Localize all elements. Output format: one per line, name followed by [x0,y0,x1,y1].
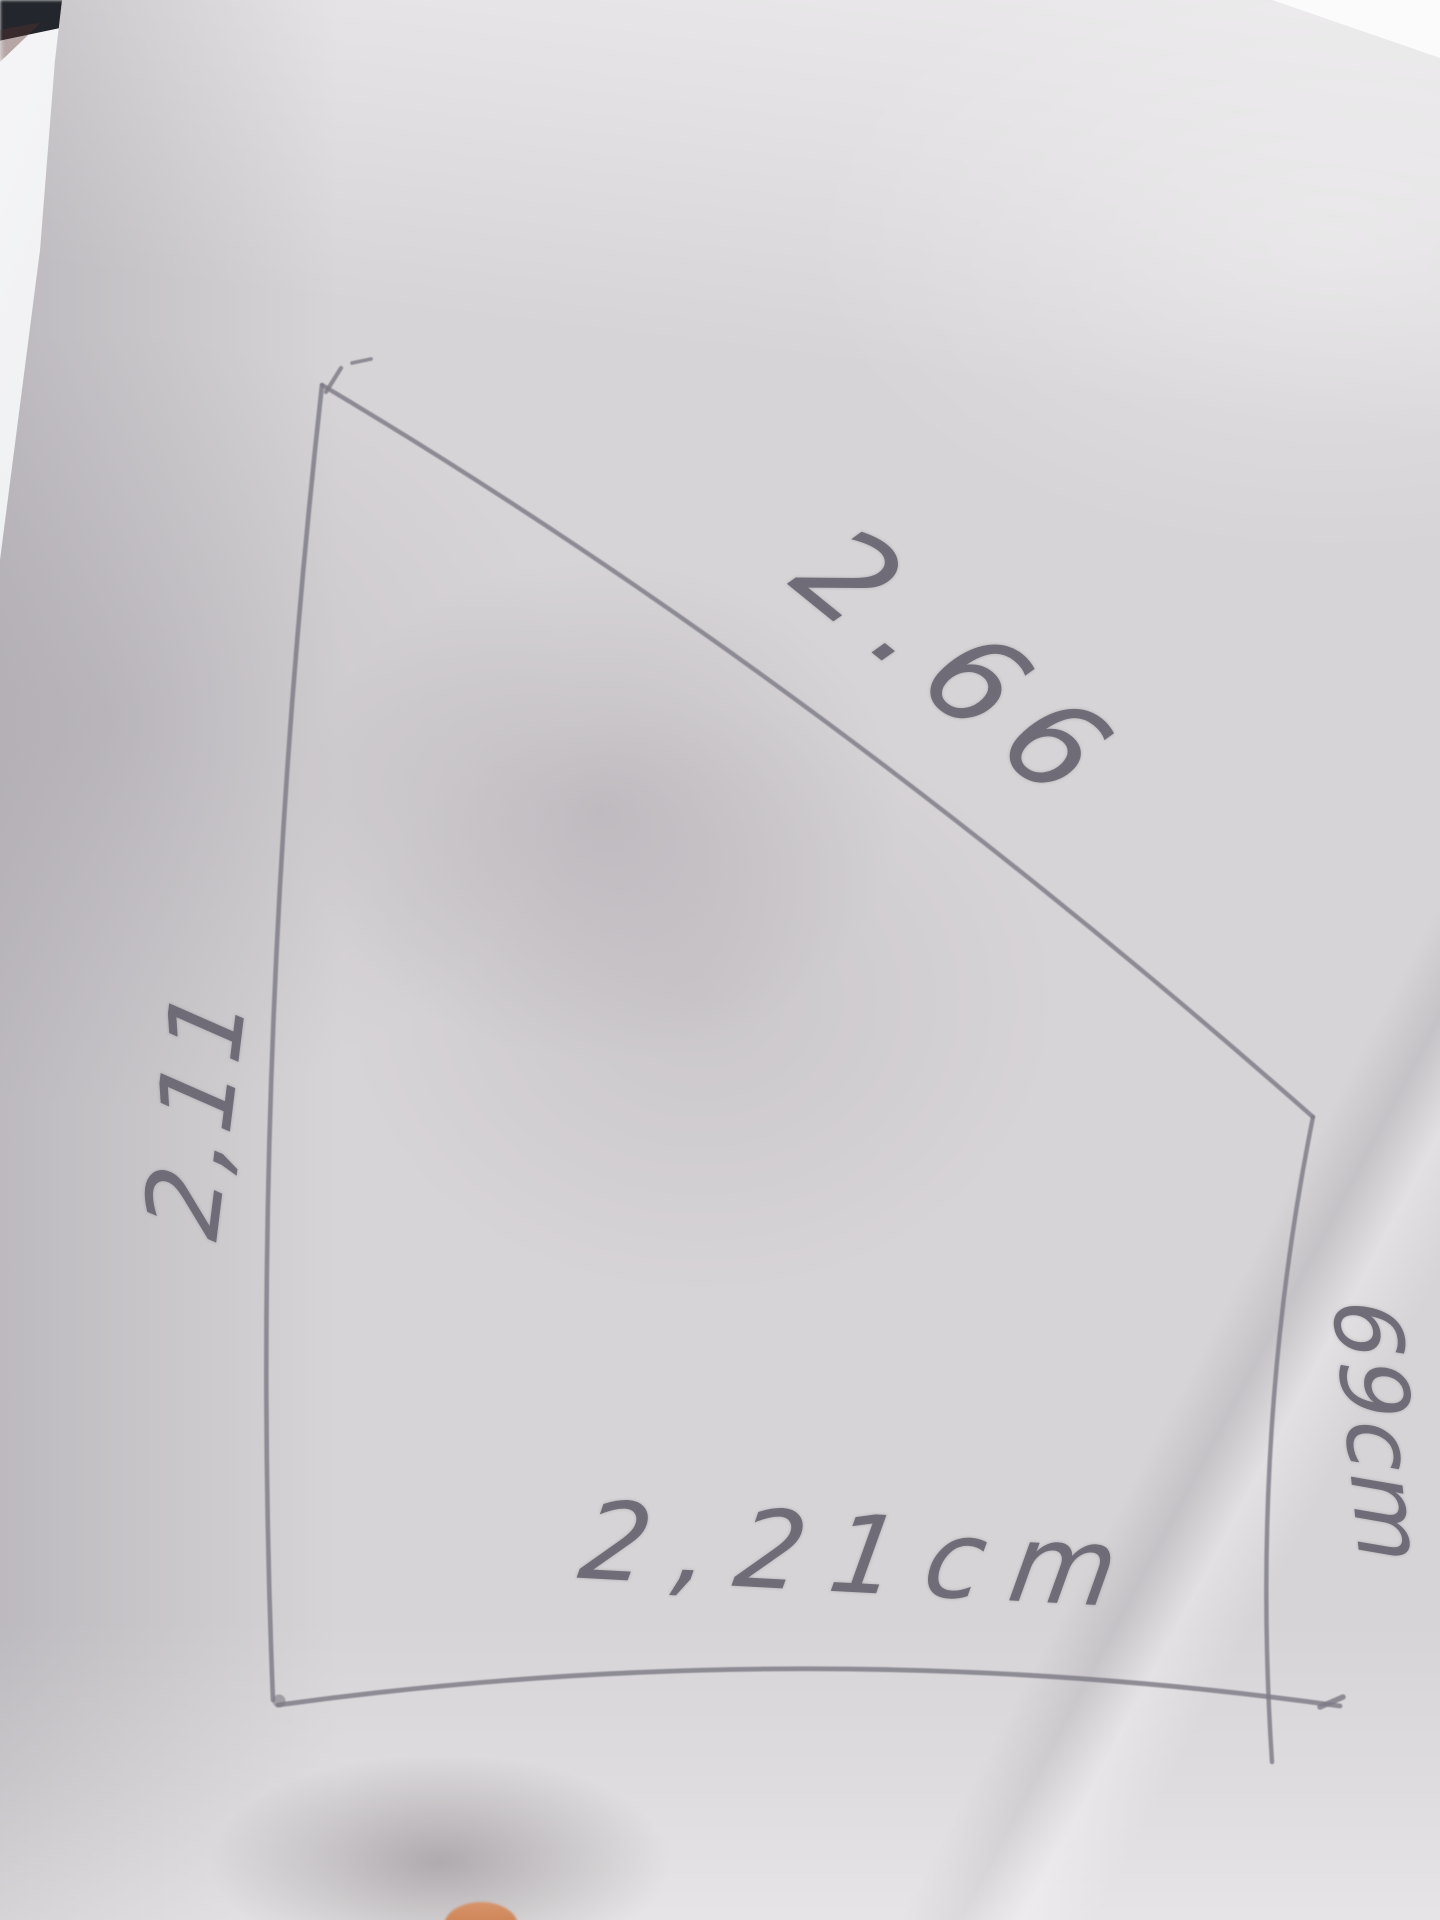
quadrilateral-side-bottom [278,1669,1340,1706]
corner-pencil-blob [273,1695,286,1708]
quadrilateral-side-right [1266,1117,1313,1762]
photo-scene: 2.66 2,11 69cm 2,21cm [0,0,1440,1920]
pencil-sketch [0,0,1440,1920]
apex-spur-stroke [326,368,341,392]
quadrilateral-side-left [266,385,322,1700]
apex-tick-mark [352,359,371,363]
quadrilateral-side-top [322,385,1313,1117]
